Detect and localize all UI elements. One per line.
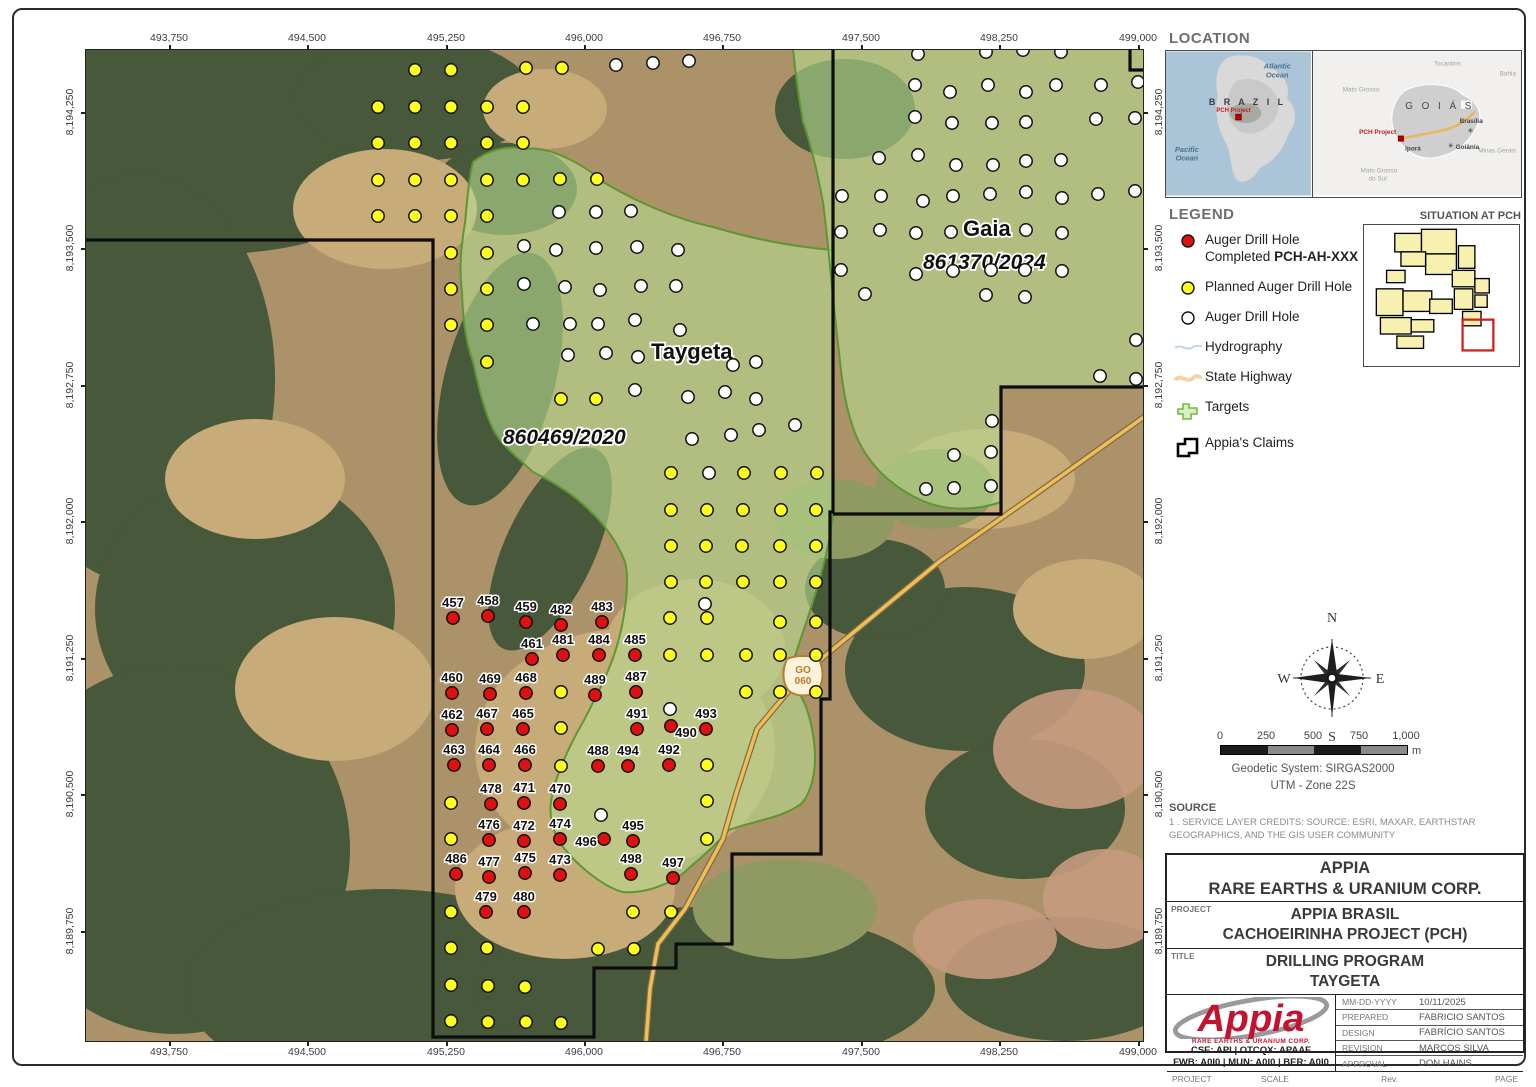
completed-auger-drill-hole-461[interactable]: [526, 653, 538, 665]
completed-auger-drill-hole-479[interactable]: [480, 906, 492, 918]
auger-drill-hole[interactable]: [559, 281, 571, 293]
planned-auger-drill-hole[interactable]: [664, 649, 676, 661]
title-block: APPIA RARE EARTHS & URANIUM CORP. PROJEC…: [1165, 853, 1525, 1053]
drill-hole-label-469: 469: [479, 671, 501, 686]
auger-drill-hole[interactable]: [909, 79, 921, 91]
planned-auger-drill-hole[interactable]: [555, 722, 567, 734]
planned-auger-drill-hole[interactable]: [810, 616, 822, 628]
auger-drill-hole[interactable]: [789, 419, 801, 431]
auger-drill-hole[interactable]: [703, 467, 715, 479]
planned-auger-drill-hole[interactable]: [775, 504, 787, 516]
planned-auger-drill-hole[interactable]: [445, 906, 457, 918]
auger-drill-hole[interactable]: [1092, 188, 1104, 200]
auger-drill-hole[interactable]: [564, 318, 576, 330]
planned-auger-drill-hole[interactable]: [774, 540, 786, 552]
auger-drill-hole[interactable]: [635, 280, 647, 292]
planned-auger-drill-hole[interactable]: [445, 247, 457, 259]
auger-drill-hole[interactable]: [946, 117, 958, 129]
auger-drill-hole[interactable]: [590, 206, 602, 218]
planned-auger-drill-hole[interactable]: [700, 540, 712, 552]
planned-auger-drill-hole[interactable]: [517, 101, 529, 113]
auger-drill-hole[interactable]: [835, 226, 847, 238]
completed-auger-drill-hole-486[interactable]: [450, 868, 462, 880]
drill-hole-label-497: 497: [662, 855, 684, 870]
auger-drill-hole[interactable]: [1056, 192, 1068, 204]
auger-drill-hole[interactable]: [948, 449, 960, 461]
planned-auger-drill-hole[interactable]: [372, 137, 384, 149]
completed-auger-drill-hole-482[interactable]: [555, 619, 567, 631]
planned-auger-drill-hole[interactable]: [774, 576, 786, 588]
auger-drill-hole[interactable]: [1094, 370, 1106, 382]
planned-auger-drill-hole[interactable]: [445, 283, 457, 295]
sheet-border: GO 060 Taygeta 860469/2020 Gaia 861370/2…: [12, 8, 1526, 1066]
auger-drill-hole[interactable]: [682, 391, 694, 403]
auger-drill-hole[interactable]: [1132, 76, 1144, 88]
northing-label-left: 8,191,250: [64, 635, 76, 682]
completed-auger-drill-hole-494[interactable]: [622, 760, 634, 772]
easting-label-top: 496,750: [703, 32, 741, 44]
planned-auger-drill-hole[interactable]: [409, 64, 421, 76]
planned-auger-drill-hole[interactable]: [445, 833, 457, 845]
planned-auger-drill-hole[interactable]: [554, 173, 566, 185]
auger-drill-hole[interactable]: [874, 224, 886, 236]
drill-hole-label-473: 473: [549, 852, 571, 867]
planned-auger-drill-hole[interactable]: [737, 576, 749, 588]
auger-drill-hole[interactable]: [875, 190, 887, 202]
auger-drill-hole[interactable]: [727, 359, 739, 371]
planned-auger-drill-hole[interactable]: [811, 467, 823, 479]
tick-left: [81, 385, 85, 387]
legend-item-highway: State Highway: [1171, 369, 1361, 386]
planned-auger-drill-hole[interactable]: [810, 686, 822, 698]
completed-auger-drill-hole-492[interactable]: [663, 759, 675, 771]
auger-drill-hole[interactable]: [945, 226, 957, 238]
completed-auger-drill-hole-476[interactable]: [483, 834, 495, 846]
auger-drill-hole[interactable]: [590, 242, 602, 254]
drill-hole-label-461: 461: [521, 636, 543, 651]
planned-auger-drill-hole[interactable]: [774, 616, 786, 628]
completed-auger-drill-hole-498[interactable]: [625, 868, 637, 880]
drill-hole-label-457: 457: [442, 595, 464, 610]
brasilia-label: Brasília: [1460, 118, 1484, 125]
planned-auger-drill-hole[interactable]: [481, 942, 493, 954]
completed-auger-drill-hole-473[interactable]: [554, 869, 566, 881]
planned-auger-drill-hole[interactable]: [409, 174, 421, 186]
planned-auger-drill-hole[interactable]: [701, 795, 713, 807]
easting-label-top: 496,000: [565, 32, 603, 44]
planned-auger-drill-hole[interactable]: [628, 943, 640, 955]
label-taygeta-license: 860469/2020: [503, 426, 626, 449]
tocantins-label: Tocantins: [1434, 61, 1461, 68]
auger-drill-hole[interactable]: [835, 264, 847, 276]
planned-auger-drill-hole[interactable]: [445, 64, 457, 76]
drill-hole-label-474: 474: [549, 816, 571, 831]
easting-label-bottom: 496,000: [565, 1046, 603, 1058]
auger-drill-hole[interactable]: [947, 265, 959, 277]
auger-drill-hole[interactable]: [912, 49, 924, 60]
northing-label-left: 8,192,000: [64, 498, 76, 545]
auger-drill-hole[interactable]: [947, 190, 959, 202]
legend-header: LEGEND: [1169, 206, 1235, 223]
planned-auger-drill-hole[interactable]: [481, 210, 493, 222]
auger-drill-hole[interactable]: [1055, 49, 1067, 58]
auger-drill-hole[interactable]: [912, 149, 924, 161]
planned-auger-drill-hole[interactable]: [556, 62, 568, 74]
auger-drill-hole[interactable]: [950, 159, 962, 171]
auger-drill-hole[interactable]: [553, 206, 565, 218]
planned-auger-drill-hole[interactable]: [517, 137, 529, 149]
auger-drill-hole[interactable]: [594, 284, 606, 296]
planned-auger-drill-hole[interactable]: [481, 356, 493, 368]
planned-auger-drill-hole[interactable]: [665, 906, 677, 918]
tick-right: [1144, 248, 1148, 250]
claims-cluster: [1376, 229, 1489, 348]
planned-auger-drill-hole[interactable]: [627, 906, 639, 918]
planned-auger-drill-hole[interactable]: [740, 686, 752, 698]
svg-text:✳: ✳: [1468, 127, 1474, 135]
auger-drill-hole[interactable]: [699, 598, 711, 610]
planned-auger-drill-hole[interactable]: [517, 174, 529, 186]
planned-auger-drill-hole[interactable]: [481, 137, 493, 149]
auger-drill-hole[interactable]: [562, 349, 574, 361]
easting-label-bottom: 494,500: [288, 1046, 326, 1058]
completed-auger-drill-hole-478[interactable]: [485, 798, 497, 810]
completed-auger-drill-hole-491[interactable]: [631, 723, 643, 735]
drill-hole-label-470: 470: [549, 781, 571, 796]
tick-top: [999, 45, 1001, 49]
northing-label-right: 8,192,000: [1153, 498, 1165, 545]
auger-drill-hole[interactable]: [1129, 185, 1141, 197]
auger-drill-hole[interactable]: [985, 446, 997, 458]
planned-auger-drill-hole[interactable]: [738, 467, 750, 479]
auger-drill-hole[interactable]: [1020, 224, 1032, 236]
completed-auger-drill-hole-483[interactable]: [596, 616, 608, 628]
planned-auger-drill-hole[interactable]: [520, 1016, 532, 1028]
auger-drill-hole[interactable]: [1056, 227, 1068, 239]
auger-drill-hole[interactable]: [592, 318, 604, 330]
completed-auger-drill-hole-477[interactable]: [483, 871, 495, 883]
planned-auger-drill-hole[interactable]: [481, 174, 493, 186]
auger-drill-hole[interactable]: [647, 57, 659, 69]
completed-auger-drill-hole-493[interactable]: [700, 723, 712, 735]
auger-drill-hole[interactable]: [948, 482, 960, 494]
planned-auger-drill-hole[interactable]: [701, 833, 713, 845]
planned-auger-drill-hole[interactable]: [810, 649, 822, 661]
auger-drill-hole[interactable]: [984, 188, 996, 200]
auger-drill-hole[interactable]: [753, 424, 765, 436]
completed-auger-drill-hole-468[interactable]: [520, 687, 532, 699]
auger-drill-hole[interactable]: [625, 205, 637, 217]
completed-auger-drill-hole-466[interactable]: [519, 759, 531, 771]
drill-hole-label-488: 488: [587, 743, 609, 758]
auger-drill-hole[interactable]: [982, 79, 994, 91]
planned-auger-drill-hole[interactable]: [701, 649, 713, 661]
planned-auger-drill-hole[interactable]: [592, 943, 604, 955]
auger-drill-hole[interactable]: [1020, 86, 1032, 98]
planned-auger-drill-hole[interactable]: [481, 101, 493, 113]
planned-auger-drill-hole[interactable]: [520, 62, 532, 74]
completed-auger-drill-hole-457[interactable]: [447, 612, 459, 624]
completed-auger-drill-hole-464[interactable]: [483, 759, 495, 771]
auger-drill-hole[interactable]: [985, 480, 997, 492]
auger-drill-hole[interactable]: [632, 351, 644, 363]
planned-auger-drill-hole[interactable]: [555, 393, 567, 405]
planned-auger-drill-hole[interactable]: [701, 759, 713, 771]
legend-item-completed-labeled: Auger Drill Hole Completed PCH-AH-XXX: [1171, 232, 1361, 266]
auger-drill-hole[interactable]: [610, 59, 622, 71]
auger-drill-hole[interactable]: [629, 314, 641, 326]
completed-auger-drill-hole-467[interactable]: [481, 723, 493, 735]
planned-auger-drill-hole[interactable]: [445, 174, 457, 186]
planned-auger-drill-hole[interactable]: [481, 247, 493, 259]
planned-auger-drill-hole[interactable]: [481, 319, 493, 331]
auger-drill-hole[interactable]: [683, 55, 695, 67]
completed-auger-drill-hole-470[interactable]: [554, 798, 566, 810]
planned-auger-drill-hole[interactable]: [409, 137, 421, 149]
auger-drill-hole[interactable]: [980, 49, 992, 58]
auger-drill-hole[interactable]: [1019, 264, 1031, 276]
completed-auger-drill-hole-480[interactable]: [518, 906, 530, 918]
planned-auger-drill-hole[interactable]: [701, 612, 713, 624]
drill-hole-label-459: 459: [515, 599, 537, 614]
auger-drill-hole[interactable]: [518, 240, 530, 252]
completed-auger-drill-hole-471[interactable]: [518, 797, 530, 809]
planned-auger-drill-hole[interactable]: [482, 1016, 494, 1028]
planned-auger-drill-hole[interactable]: [701, 504, 713, 516]
completed-auger-drill-hole-489[interactable]: [589, 689, 601, 701]
auger-drill-hole[interactable]: [750, 356, 762, 368]
auger-drill-hole[interactable]: [1055, 154, 1067, 166]
drill-hole-label-460: 460: [441, 670, 463, 685]
planned-auger-drill-hole[interactable]: [810, 540, 822, 552]
auger-drill-hole[interactable]: [725, 429, 737, 441]
tick-left: [81, 248, 85, 250]
auger-drill-hole[interactable]: [873, 152, 885, 164]
auger-drill-hole[interactable]: [527, 318, 539, 330]
tick-top: [584, 45, 586, 49]
atlantic-ocean-label: Atlantic: [1263, 61, 1292, 70]
appia-logo: Appia RARE EARTHS & URANIUM CORP. CSE: A…: [1167, 995, 1335, 1071]
auger-drill-hole[interactable]: [686, 433, 698, 445]
northing-label-right: 8,191,250: [1153, 635, 1165, 682]
planned-auger-drill-hole[interactable]: [445, 1015, 457, 1027]
auger-drill-hole[interactable]: [985, 264, 997, 276]
main-map[interactable]: GO 060 Taygeta 860469/2020 Gaia 861370/2…: [85, 49, 1144, 1042]
planned-auger-drill-hole[interactable]: [665, 576, 677, 588]
auger-drill-hole[interactable]: [909, 111, 921, 123]
drill-hole-label-477: 477: [478, 854, 500, 869]
planned-auger-drill-hole[interactable]: [664, 612, 676, 624]
auger-drill-hole[interactable]: [750, 393, 762, 405]
planned-auger-drill-hole[interactable]: [445, 101, 457, 113]
drill-hole-label-493: 493: [695, 706, 717, 721]
auger-drill-hole[interactable]: [910, 227, 922, 239]
goias-inset-map[interactable]: Mato Grosso Tocantins Bahia Minas Gerais…: [1313, 51, 1521, 197]
auger-drill-hole[interactable]: [1130, 373, 1142, 385]
auger-drill-hole[interactable]: [836, 190, 848, 202]
completed-auger-drill-hole-495[interactable]: [627, 835, 639, 847]
auger-drill-hole[interactable]: [1090, 113, 1102, 125]
svg-text:Appia: Appia: [1197, 997, 1305, 1039]
planned-auger-drill-hole[interactable]: [445, 210, 457, 222]
planned-auger-drill-hole[interactable]: [445, 979, 457, 991]
drill-hole-label-465: 465: [512, 706, 534, 721]
tick-top: [169, 45, 171, 49]
planned-auger-drill-hole[interactable]: [774, 686, 786, 698]
planned-auger-drill-hole[interactable]: [700, 576, 712, 588]
auger-drill-hole[interactable]: [672, 244, 684, 256]
planned-auger-drill-hole[interactable]: [519, 981, 531, 993]
completed-auger-drill-hole-472[interactable]: [518, 835, 530, 847]
auger-drill-hole[interactable]: [674, 324, 686, 336]
completed-auger-drill-hole-481[interactable]: [557, 649, 569, 661]
planned-auger-drill-hole[interactable]: [665, 540, 677, 552]
auger-drill-hole[interactable]: [629, 384, 641, 396]
planned-auger-drill-hole[interactable]: [775, 467, 787, 479]
drill-hole-label-458: 458: [477, 593, 499, 608]
goias-label: G O I Á S: [1405, 101, 1474, 112]
drill-hole-label-471: 471: [513, 780, 535, 795]
planned-auger-drill-hole[interactable]: [409, 210, 421, 222]
auger-drill-hole[interactable]: [550, 244, 562, 256]
mato-grosso-do-sul-label: Mato Grosso: [1361, 168, 1398, 175]
auger-drill-hole[interactable]: [987, 159, 999, 171]
planned-auger-drill-hole[interactable]: [590, 393, 602, 405]
auger-drill-hole[interactable]: [980, 289, 992, 301]
planned-auger-drill-hole[interactable]: [736, 540, 748, 552]
mato-grosso-label: Mato Grosso: [1343, 86, 1380, 93]
auger-drill-hole[interactable]: [631, 241, 643, 253]
legend-item-auger: Auger Drill Hole: [1171, 309, 1361, 326]
planned-auger-drill-hole[interactable]: [445, 942, 457, 954]
completed-auger-drill-hole-475[interactable]: [519, 867, 531, 879]
scale-bar-segments: [1220, 745, 1408, 755]
planned-auger-drill-hole[interactable]: [409, 101, 421, 113]
planned-auger-drill-hole[interactable]: [774, 649, 786, 661]
auger-drill-hole[interactable]: [1020, 116, 1032, 128]
auger-drill-hole[interactable]: [1020, 186, 1032, 198]
label-taygeta-target: Taygeta: [651, 339, 733, 364]
easting-label-bottom: 496,750: [703, 1046, 741, 1058]
tick-right: [1144, 931, 1148, 933]
ipora-label: Iporá: [1405, 146, 1421, 153]
completed-auger-drill-hole-474[interactable]: [554, 833, 566, 845]
auger-drill-hole[interactable]: [1095, 79, 1107, 91]
planned-auger-drill-hole[interactable]: [372, 210, 384, 222]
completed-auger-drill-hole-459[interactable]: [520, 616, 532, 628]
brazil-inset-map[interactable]: Atlantic Ocean B R A Z I L PCH Project P…: [1166, 51, 1313, 197]
auger-drill-hole[interactable]: [595, 809, 607, 821]
planned-auger-drill-hole[interactable]: [372, 174, 384, 186]
completed-auger-drill-hole-463[interactable]: [448, 759, 460, 771]
tick-right: [1144, 385, 1148, 387]
auger-drill-hole[interactable]: [1050, 79, 1062, 91]
planned-auger-drill-hole[interactable]: [445, 319, 457, 331]
planned-auger-drill-hole[interactable]: [372, 101, 384, 113]
pch-project-marker: [1236, 114, 1242, 120]
right-panel: LOCATION Atlantic Ocean B R A Z I L PCH …: [1165, 30, 1527, 1060]
drill-hole-label-485: 485: [624, 632, 646, 647]
planned-auger-drill-hole[interactable]: [740, 649, 752, 661]
northing-label-right: 8,192,750: [1153, 362, 1165, 409]
drill-hole-label-462: 462: [441, 707, 463, 722]
tick-left: [81, 931, 85, 933]
auger-drill-hole[interactable]: [986, 117, 998, 129]
planned-auger-drill-hole[interactable]: [445, 797, 457, 809]
auger-drill-hole[interactable]: [986, 415, 998, 427]
auger-drill-hole[interactable]: [1130, 334, 1142, 346]
auger-drill-hole[interactable]: [920, 483, 932, 495]
easting-label-top: 497,500: [842, 32, 880, 44]
legend-item-claims: Appia's Claims: [1171, 435, 1361, 458]
tick-bottom: [1138, 1042, 1140, 1046]
auger-drill-hole[interactable]: [859, 288, 871, 300]
planned-auger-drill-hole[interactable]: [555, 1017, 567, 1029]
completed-auger-drill-hole-458[interactable]: [482, 610, 494, 622]
northing-label-right: 8,194,250: [1153, 89, 1165, 136]
highway-line-icon: [1171, 369, 1205, 386]
red-dot-icon: [1171, 232, 1205, 249]
drill-hole-label-482: 482: [550, 602, 572, 617]
tick-top: [1138, 45, 1140, 49]
completed-auger-drill-hole-460[interactable]: [446, 687, 458, 699]
map-title: TITLE DRILLING PROGRAM TAYGETA: [1167, 949, 1523, 995]
completed-auger-drill-hole-488[interactable]: [592, 760, 604, 772]
planned-auger-drill-hole[interactable]: [481, 283, 493, 295]
planned-auger-drill-hole[interactable]: [482, 980, 494, 992]
planned-auger-drill-hole[interactable]: [591, 173, 603, 185]
bahia-label: Bahia: [1500, 70, 1517, 77]
planned-auger-drill-hole[interactable]: [555, 686, 567, 698]
completed-auger-drill-hole-497[interactable]: [667, 872, 679, 884]
easting-label-top: 495,250: [427, 32, 465, 44]
auger-drill-hole[interactable]: [719, 386, 731, 398]
auger-drill-hole[interactable]: [518, 278, 530, 290]
completed-auger-drill-hole-496[interactable]: [598, 833, 610, 845]
completed-auger-drill-hole-485[interactable]: [629, 649, 641, 661]
completed-auger-drill-hole-465[interactable]: [517, 723, 529, 735]
planned-auger-drill-hole[interactable]: [555, 760, 567, 772]
auger-drill-hole[interactable]: [664, 703, 676, 715]
planned-auger-drill-hole[interactable]: [810, 576, 822, 588]
situation-header: SITUATION AT PCH: [1420, 210, 1521, 222]
planned-auger-drill-hole[interactable]: [665, 504, 677, 516]
auger-drill-hole[interactable]: [1129, 112, 1141, 124]
white-dot-icon: [1171, 309, 1205, 326]
auger-drill-hole[interactable]: [1017, 49, 1029, 56]
auger-drill-hole[interactable]: [600, 347, 612, 359]
auger-drill-hole[interactable]: [917, 195, 929, 207]
auger-drill-hole[interactable]: [910, 268, 922, 280]
auger-drill-hole[interactable]: [944, 86, 956, 98]
situation-inset[interactable]: [1363, 224, 1520, 367]
auger-drill-hole[interactable]: [670, 280, 682, 292]
planned-auger-drill-hole[interactable]: [737, 504, 749, 516]
completed-auger-drill-hole-487[interactable]: [630, 686, 642, 698]
easting-label-top: 494,500: [288, 32, 326, 44]
completed-auger-drill-hole-469[interactable]: [484, 688, 496, 700]
auger-drill-hole[interactable]: [1019, 291, 1031, 303]
claims-polygon-icon: [1171, 435, 1205, 458]
planned-auger-drill-hole[interactable]: [445, 137, 457, 149]
completed-auger-drill-hole-462[interactable]: [446, 724, 458, 736]
auger-drill-hole[interactable]: [1056, 265, 1068, 277]
completed-auger-drill-hole-484[interactable]: [593, 649, 605, 661]
satellite-map-canvas[interactable]: GO 060 Taygeta 860469/2020 Gaia 861370/2…: [85, 49, 1144, 1042]
planned-auger-drill-hole[interactable]: [810, 504, 822, 516]
auger-drill-hole[interactable]: [1020, 155, 1032, 167]
planned-auger-drill-hole[interactable]: [665, 467, 677, 479]
